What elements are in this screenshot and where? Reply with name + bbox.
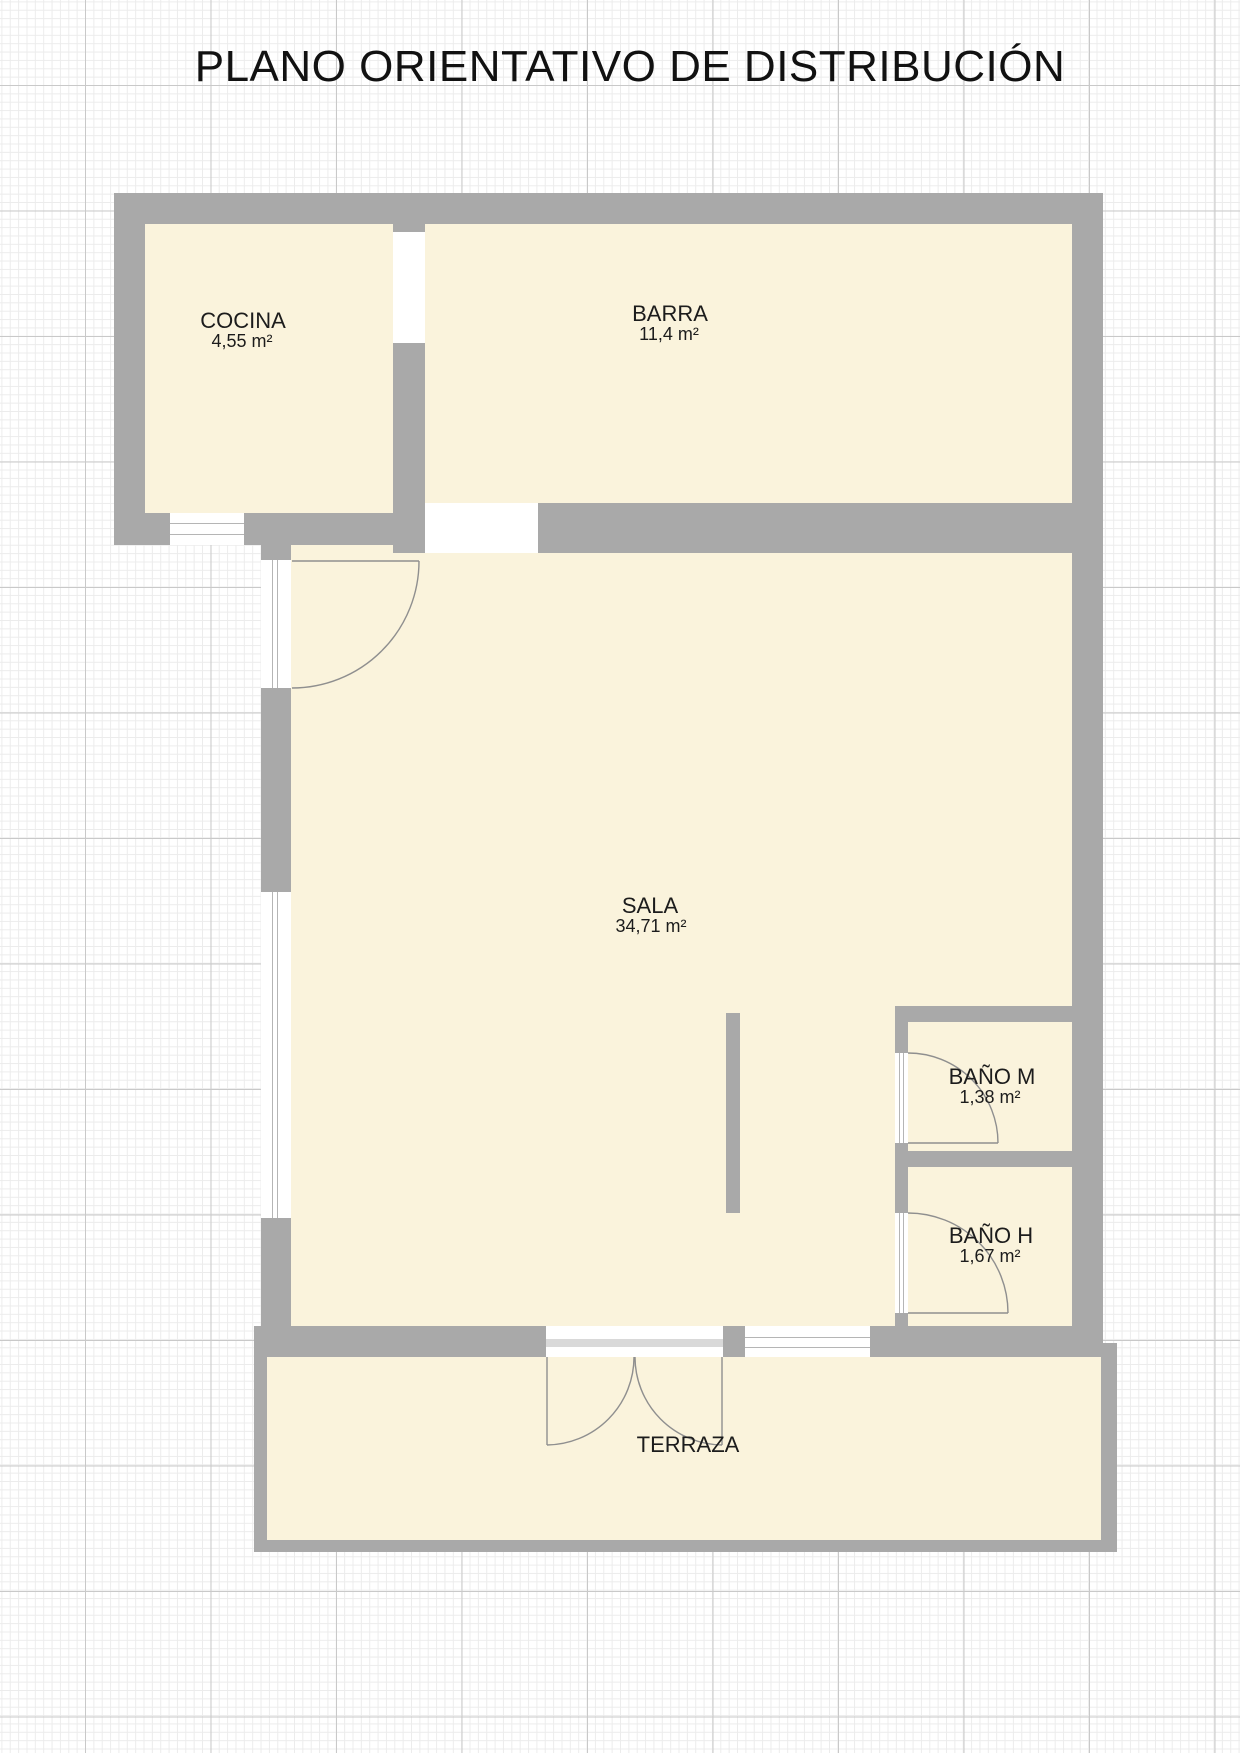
bano-h-door-frame-line xyxy=(903,1213,904,1313)
room-area-cocina: 4,55 m² xyxy=(211,332,272,350)
cocina-window xyxy=(170,513,244,545)
wall-bano-m-top xyxy=(895,1006,1072,1022)
room-barra-floor xyxy=(425,224,1072,503)
bano-m-door-frame-line xyxy=(899,1053,900,1143)
room-label-barra: BARRA xyxy=(632,303,708,325)
bano-h-door-frame-line xyxy=(899,1213,900,1313)
room-area-bano-m: 1,38 m² xyxy=(959,1088,1020,1106)
cocina-window-glazing-line xyxy=(170,534,244,535)
sala-bottom-window-glazing-line xyxy=(745,1347,870,1348)
wall-left-upper xyxy=(114,193,145,545)
wall-bano-divider xyxy=(895,1151,1072,1167)
room-label-sala: SALA xyxy=(622,895,678,917)
wall-terraza-left xyxy=(254,1326,267,1552)
room-area-barra: 11,4 m² xyxy=(639,325,699,343)
barra-pass-opening xyxy=(425,503,538,553)
wall-right xyxy=(1072,224,1103,1343)
room-label-bano-h: BAÑO H xyxy=(949,1225,1033,1247)
sala-bottom-window-glazing-line xyxy=(745,1337,870,1338)
room-label-bano-m: BAÑO M xyxy=(949,1066,1036,1088)
wall-terraza-right xyxy=(1101,1343,1117,1552)
room-label-terraza: TERRAZA xyxy=(637,1434,740,1456)
sala-entry-door-frame-line xyxy=(272,560,273,688)
cocina-window-glazing-line xyxy=(170,523,244,524)
room-area-bano-h: 1,67 m² xyxy=(959,1247,1020,1265)
wall-terraza-bottom xyxy=(254,1540,1117,1552)
wall-cocina-bottom xyxy=(114,513,395,545)
cocina-barra-opening xyxy=(393,232,425,343)
sala-window-glazing-line xyxy=(277,892,278,1218)
room-cocina-floor xyxy=(145,224,393,513)
room-area-sala: 34,71 m² xyxy=(615,917,686,935)
room-label-cocina: COCINA xyxy=(200,310,286,332)
terraza-double-door-leaf-band xyxy=(546,1339,723,1347)
floorplan-page: { "title": "PLANO ORIENTATIVO DE DISTRIB… xyxy=(0,0,1240,1753)
sala-window xyxy=(261,892,291,1218)
sala-window-glazing-line xyxy=(272,892,273,1218)
bano-m-door-frame-line xyxy=(903,1053,904,1143)
bano-h-door-opening xyxy=(895,1213,908,1313)
sala-bottom-window xyxy=(745,1326,870,1357)
page-title: PLANO ORIENTATIVO DE DISTRIBUCIÓN xyxy=(195,42,1066,92)
sala-entry-door-opening xyxy=(261,560,291,688)
sala-entry-door-frame-line xyxy=(277,560,278,688)
wall-sala-partition xyxy=(726,1013,740,1213)
bano-m-door-opening xyxy=(895,1053,908,1143)
wall-top xyxy=(114,193,1103,224)
